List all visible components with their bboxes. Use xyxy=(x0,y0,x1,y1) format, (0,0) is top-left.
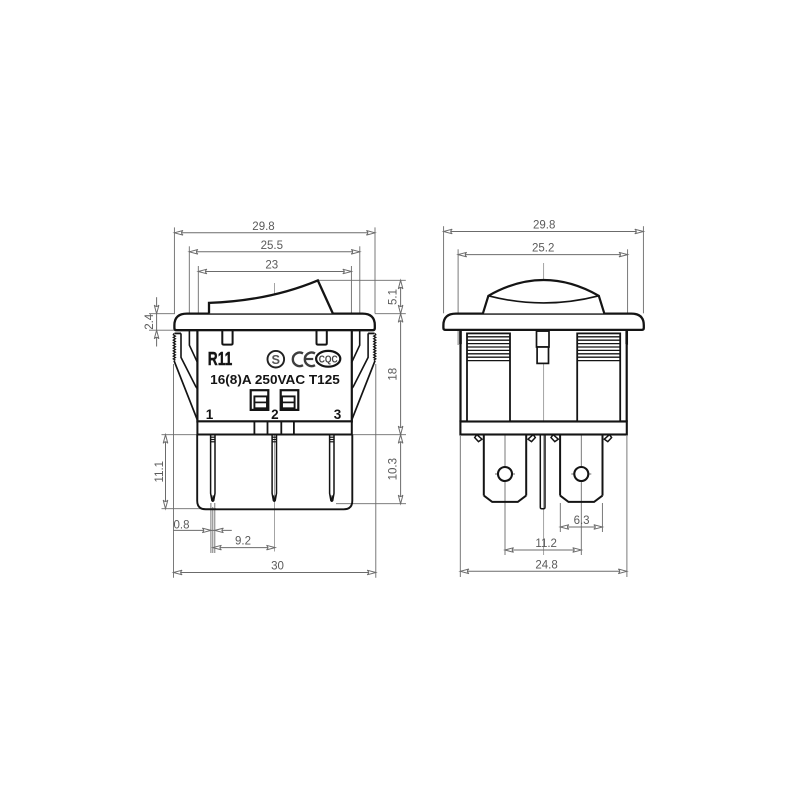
svg-text:1: 1 xyxy=(206,407,214,422)
svg-text:25.5: 25.5 xyxy=(261,240,283,252)
svg-text:CQC: CQC xyxy=(319,355,338,366)
svg-text:30: 30 xyxy=(271,561,284,573)
svg-text:11.1: 11.1 xyxy=(154,461,166,483)
svg-text:R11: R11 xyxy=(208,348,232,369)
svg-text:10.3: 10.3 xyxy=(388,458,400,480)
svg-text:0.8: 0.8 xyxy=(174,520,190,532)
svg-text:5.1: 5.1 xyxy=(388,289,400,305)
svg-text:11.2: 11.2 xyxy=(535,538,557,550)
svg-text:24.8: 24.8 xyxy=(535,559,557,571)
svg-text:16(8)A 250VAC T125: 16(8)A 250VAC T125 xyxy=(210,372,340,387)
svg-text:29.8: 29.8 xyxy=(252,221,274,233)
svg-text:2: 2 xyxy=(271,407,279,422)
svg-text:6.3: 6.3 xyxy=(574,515,590,527)
svg-text:9.2: 9.2 xyxy=(235,536,251,548)
svg-text:23: 23 xyxy=(265,260,278,272)
svg-text:29.8: 29.8 xyxy=(533,220,555,232)
svg-text:25.2: 25.2 xyxy=(532,243,554,255)
svg-text:3: 3 xyxy=(334,407,342,422)
svg-text:S: S xyxy=(272,352,281,367)
svg-text:18: 18 xyxy=(388,368,400,381)
svg-text:2.4: 2.4 xyxy=(144,313,156,330)
